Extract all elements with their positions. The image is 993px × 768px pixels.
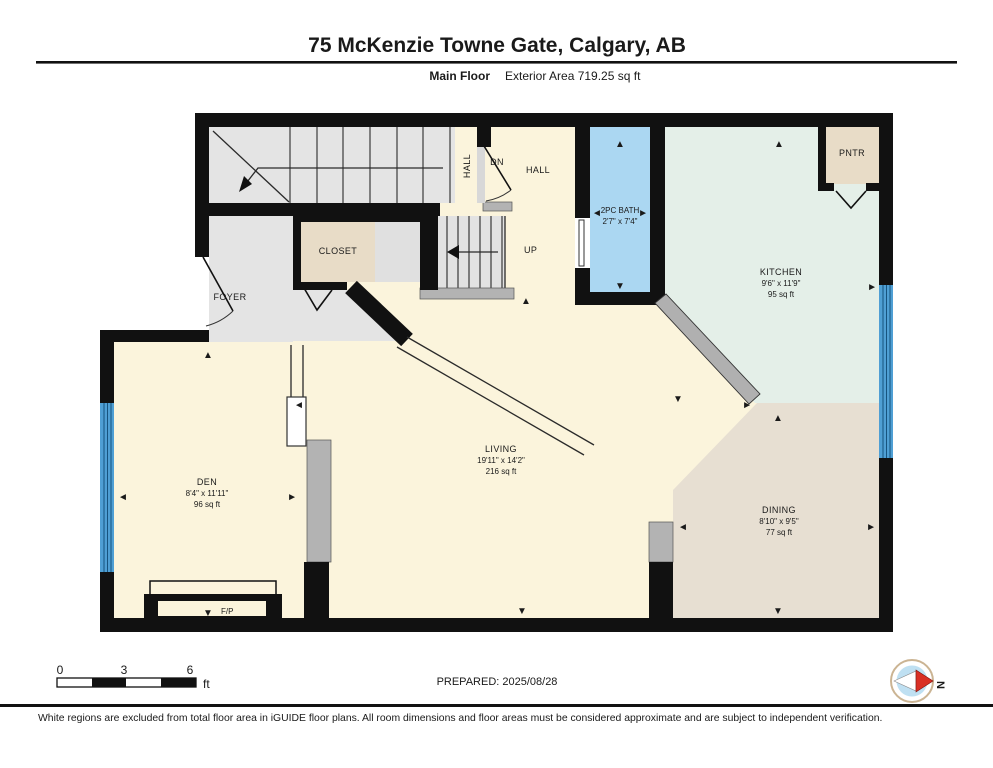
svg-text:◄: ◄ — [592, 208, 602, 219]
bath-door — [579, 220, 584, 266]
svg-text:ft: ft — [203, 677, 210, 691]
window-den — [100, 403, 114, 572]
footer-rule — [0, 704, 993, 707]
svg-text:►: ► — [638, 208, 648, 219]
hall-label: HALL — [526, 165, 550, 175]
pantry-label: PNTR — [839, 148, 865, 158]
page-title: 75 McKenzie Towne Gate, Calgary, AB — [308, 34, 686, 57]
svg-text:8'10" x 9'5": 8'10" x 9'5" — [759, 517, 799, 526]
svg-text:19'11" x 14'2": 19'11" x 14'2" — [477, 456, 525, 465]
svg-text:▼: ▼ — [673, 394, 683, 405]
svg-text:▼: ▼ — [773, 606, 783, 617]
svg-text:▲: ▲ — [773, 413, 783, 424]
hall-side-label: HALL — [462, 154, 472, 178]
svg-text:▼: ▼ — [615, 281, 625, 292]
dn-label: DN — [490, 157, 504, 167]
fireplace — [144, 581, 282, 622]
window-kitchen-dining — [879, 285, 893, 458]
svg-text:0: 0 — [57, 663, 64, 677]
svg-text:◄: ◄ — [678, 522, 688, 533]
svg-text:95 sq ft: 95 sq ft — [768, 290, 795, 299]
svg-text:▲: ▲ — [521, 296, 531, 307]
compass: N — [891, 660, 946, 702]
foyer-label: FOYER — [213, 292, 246, 302]
svg-text:◄: ◄ — [294, 400, 304, 411]
disclaimer-text: White regions are excluded from total fl… — [38, 713, 882, 724]
svg-text:◄: ◄ — [118, 492, 128, 503]
svg-text:KITCHEN: KITCHEN — [760, 267, 802, 277]
header-rule — [36, 61, 957, 64]
fireplace-label: F/P — [221, 607, 233, 616]
svg-text:6: 6 — [187, 663, 194, 677]
svg-text:9'6" x 11'9": 9'6" x 11'9" — [762, 279, 801, 288]
svg-text:►: ► — [742, 400, 752, 411]
svg-text:216 sq ft: 216 sq ft — [486, 467, 517, 476]
svg-text:▲: ▲ — [615, 139, 625, 150]
stairs-down — [209, 127, 455, 203]
svg-text:2'7" x 7'4": 2'7" x 7'4" — [603, 217, 638, 226]
svg-text:77 sq ft: 77 sq ft — [766, 528, 793, 537]
closet-label: CLOSET — [319, 246, 358, 256]
exterior-area-label: Exterior Area 719.25 sq ft — [505, 69, 641, 83]
room-bath — [575, 127, 665, 305]
svg-text:►: ► — [866, 522, 876, 533]
svg-text:▼: ▼ — [203, 608, 213, 619]
compass-north-label: N — [934, 681, 946, 689]
svg-text:DINING: DINING — [762, 505, 796, 515]
prepared-date: PREPARED: 2025/08/28 — [437, 676, 558, 688]
svg-text:▼: ▼ — [517, 606, 527, 617]
svg-text:LIVING: LIVING — [485, 444, 517, 454]
svg-text:8'4" x 11'11": 8'4" x 11'11" — [186, 489, 229, 498]
svg-text:▲: ▲ — [203, 350, 213, 361]
svg-text:3: 3 — [121, 663, 128, 677]
svg-text:▲: ▲ — [774, 139, 784, 150]
svg-text:►: ► — [287, 492, 297, 503]
svg-text:96 sq ft: 96 sq ft — [194, 500, 221, 509]
up-label: UP — [524, 245, 537, 255]
floor-plan-canvas: 75 McKenzie Towne Gate, Calgary, AB Main… — [0, 0, 993, 768]
living-dining-wall — [649, 522, 673, 618]
svg-text:2PC BATH: 2PC BATH — [601, 206, 640, 215]
floor-label: Main Floor — [429, 69, 490, 83]
scale-bar: 0 3 6 ft — [57, 663, 211, 691]
svg-text:DEN: DEN — [197, 477, 217, 487]
floorplan-page: 75 McKenzie Towne Gate, Calgary, AB Main… — [0, 0, 993, 768]
svg-text:►: ► — [867, 282, 877, 293]
